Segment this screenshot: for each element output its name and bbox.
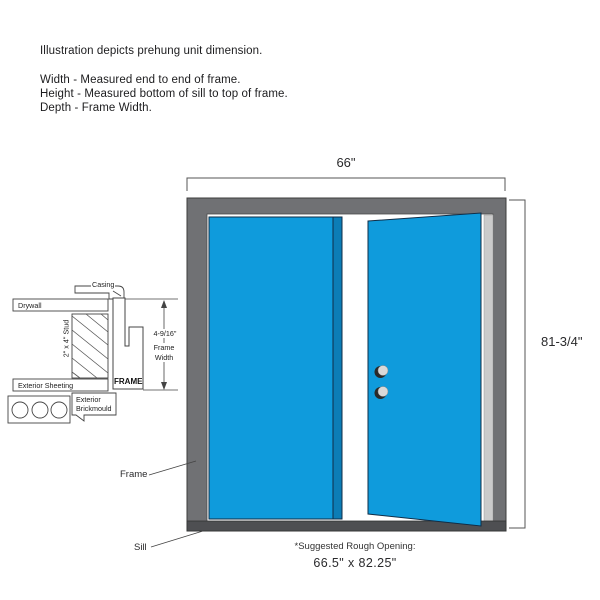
deadbolt-knob bbox=[378, 366, 388, 376]
sill-callout-label: Sill bbox=[134, 542, 147, 553]
width-definition: Width - Measured end to end of frame. bbox=[40, 73, 288, 87]
frame-width-dimension-value: 4-9/16" bbox=[146, 329, 184, 338]
rough-opening-label: *Suggested Rough Opening: bbox=[255, 541, 455, 552]
depth-definition: Depth - Frame Width. bbox=[40, 101, 288, 115]
frame-section-label: FRAME bbox=[114, 377, 142, 386]
exterior-sheeting-label: Exterior Sheeting bbox=[18, 381, 73, 390]
brickmould-label: Exterior Brickmould bbox=[76, 395, 112, 413]
brickmould-section bbox=[8, 396, 70, 423]
rough-opening-value: 66.5" x 82.25" bbox=[255, 556, 455, 570]
height-definition: Height - Measured bottom of sill to top … bbox=[40, 87, 288, 101]
frame-width-dimension-label: Frame Width bbox=[146, 343, 182, 362]
prehung-door-illustration: Illustration depicts prehung unit dimens… bbox=[0, 0, 600, 600]
sill-leader-line bbox=[151, 531, 203, 547]
left-door-edge bbox=[333, 217, 342, 519]
dimension-definitions: Width - Measured end to end of frame. He… bbox=[40, 73, 288, 116]
frame-width-arrow-down bbox=[161, 382, 167, 390]
stud-label: 2" x 4" Stud bbox=[62, 311, 71, 367]
handle-knob bbox=[378, 387, 388, 397]
height-dimension-value: 81-3/4" bbox=[541, 334, 582, 349]
frame-width-arrow-up bbox=[161, 300, 167, 308]
right-jamb-reveal bbox=[484, 215, 493, 521]
illustration-note: Illustration depicts prehung unit dimens… bbox=[40, 45, 262, 57]
drywall-label: Drywall bbox=[18, 301, 42, 310]
casing-label: Casing bbox=[91, 280, 115, 289]
frame-callout-label: Frame bbox=[120, 469, 147, 480]
frame-jamb-profile bbox=[113, 298, 143, 389]
width-dimension-value: 66" bbox=[316, 155, 376, 170]
width-dimension-bracket bbox=[187, 178, 505, 191]
left-door-panel bbox=[209, 217, 333, 519]
height-dimension-bracket bbox=[509, 200, 525, 528]
